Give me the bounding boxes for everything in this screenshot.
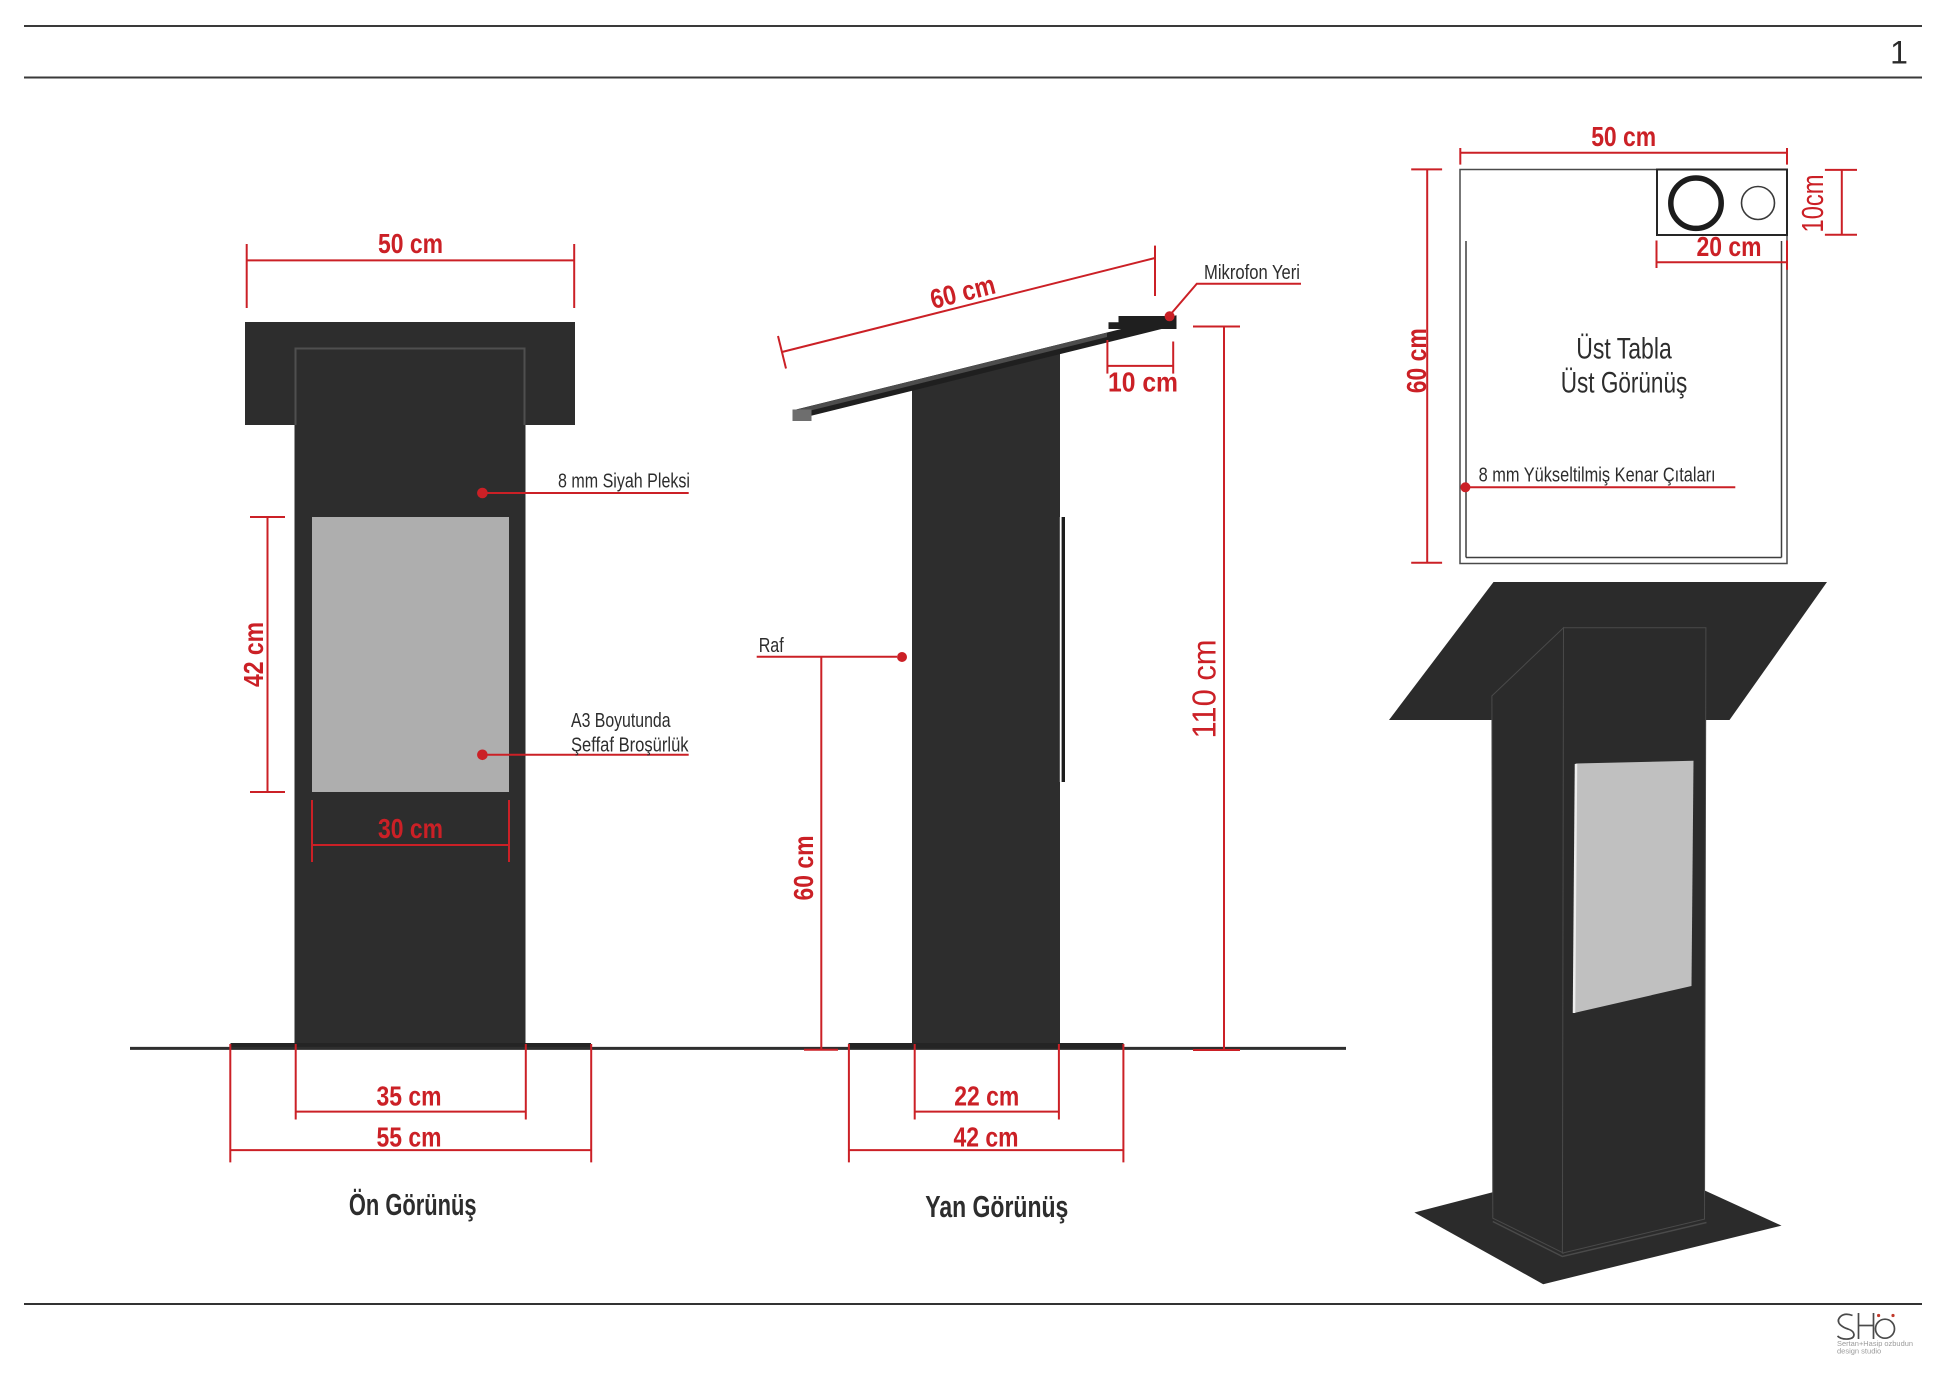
svg-text:42 cm: 42 cm [238, 622, 269, 687]
svg-text:Şeffaf Broşürlük: Şeffaf Broşürlük [571, 734, 689, 757]
svg-text:50 cm: 50 cm [1591, 121, 1656, 152]
svg-text:42 cm: 42 cm [954, 1122, 1019, 1153]
svg-text:Yan Görünüş: Yan Görünüş [925, 1189, 1068, 1224]
svg-text:Üst Görünüş: Üst Görünüş [1561, 367, 1688, 400]
svg-text:design studio: design studio [1837, 1347, 1881, 1356]
svg-text:20 cm: 20 cm [1697, 231, 1762, 262]
svg-text:60 cm: 60 cm [1401, 328, 1432, 393]
svg-text:10 cm: 10 cm [1108, 367, 1178, 398]
svg-text:8 mm Yükseltilmiş Kenar Çıtala: 8 mm Yükseltilmiş Kenar Çıtaları [1479, 464, 1716, 487]
svg-text:50 cm: 50 cm [378, 228, 443, 259]
svg-text:55 cm: 55 cm [377, 1122, 442, 1153]
svg-text:30 cm: 30 cm [378, 813, 443, 844]
svg-text:8 mm Siyah Pleksi: 8 mm Siyah Pleksi [558, 470, 690, 493]
svg-text:Üst Tabla: Üst Tabla [1576, 333, 1672, 366]
svg-text:A3 Boyutunda: A3 Boyutunda [571, 709, 671, 732]
svg-text:1: 1 [1890, 35, 1908, 71]
svg-text:10cm: 10cm [1795, 175, 1830, 233]
svg-text:22 cm: 22 cm [954, 1081, 1019, 1112]
svg-text:Mikrofon Yeri: Mikrofon Yeri [1204, 261, 1300, 284]
svg-text:Ön Görünüş: Ön Görünüş [349, 1187, 477, 1222]
svg-text:60 cm: 60 cm [788, 836, 819, 901]
svg-text:Raf: Raf [759, 634, 784, 657]
svg-text:110 cm: 110 cm [1187, 640, 1224, 739]
svg-text:35 cm: 35 cm [377, 1081, 442, 1112]
